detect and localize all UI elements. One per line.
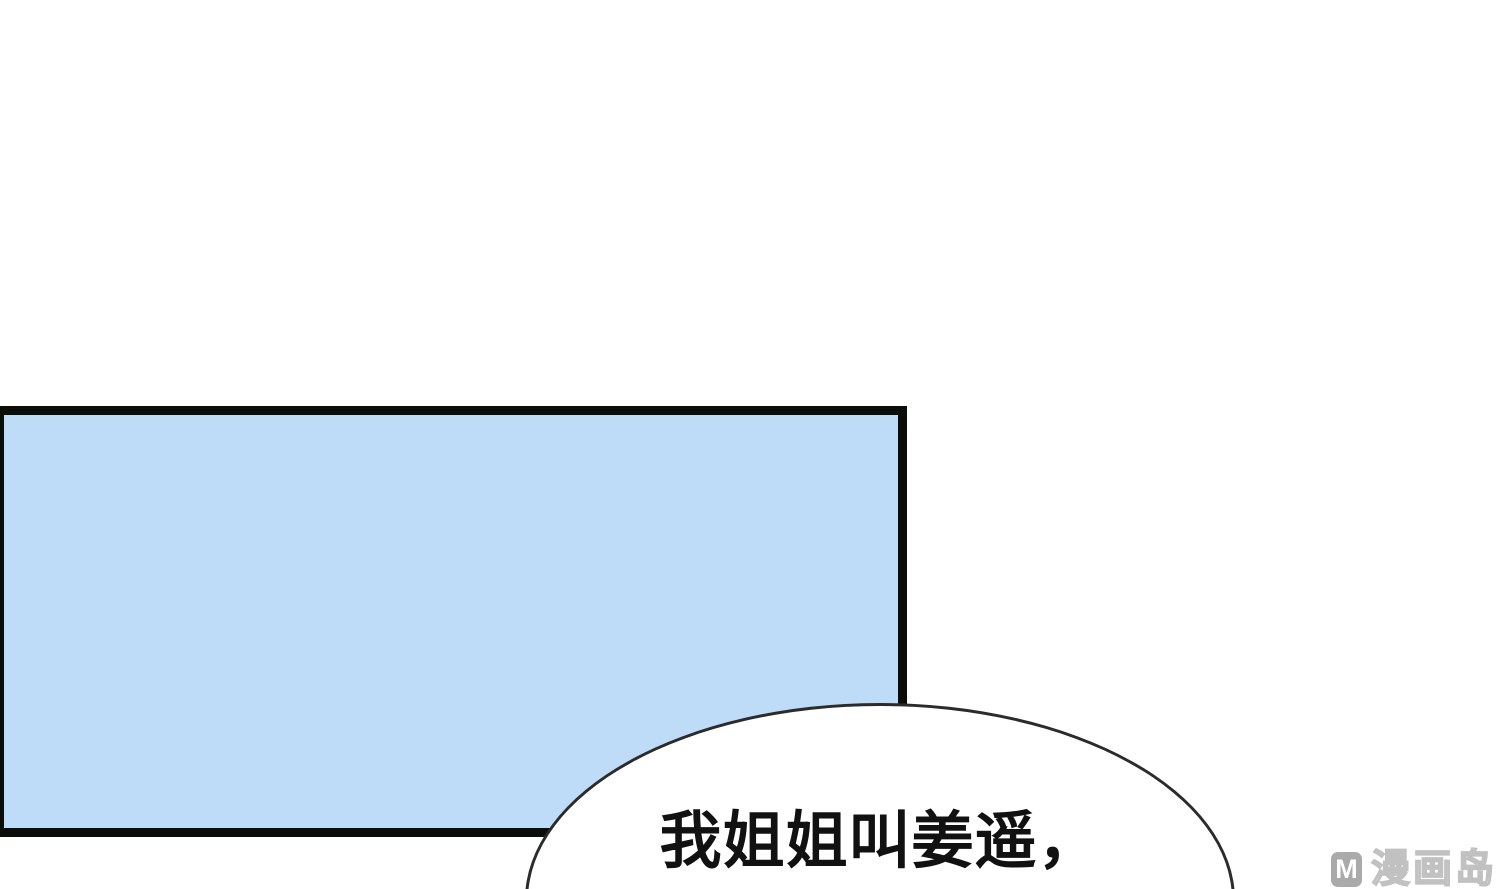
speech-bubble-text: 我姐姐叫姜遥， xyxy=(528,804,1232,880)
manhuadao-logo-icon: M xyxy=(1331,852,1362,887)
watermark-logo-letter: M xyxy=(1335,856,1358,883)
watermark-site-name: 漫画岛 xyxy=(1371,850,1497,889)
comic-page: 我姐姐叫姜遥， M 漫画岛 xyxy=(0,0,1500,889)
watermark: M 漫画岛 xyxy=(1331,850,1497,889)
